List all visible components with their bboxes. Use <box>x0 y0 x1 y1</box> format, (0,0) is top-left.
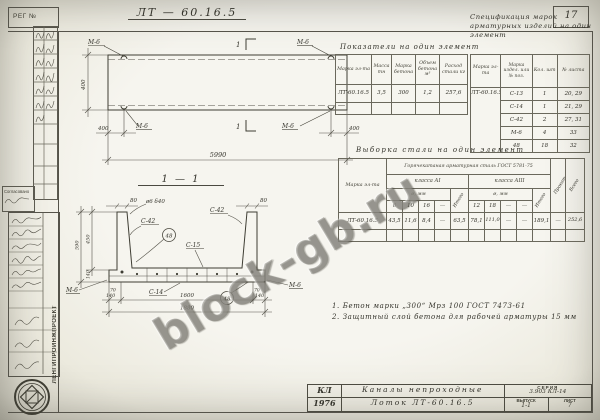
dim-wall-right: 80 <box>260 198 267 204</box>
org-name: ЛЕНГИПРОИНЖПРОЕКТ <box>52 305 58 383</box>
steel-prokat: — <box>551 213 566 230</box>
steel-a3-1: 111,0 <box>485 213 501 230</box>
steel-row-mark: ЛТ-60.16.5 <box>339 213 387 230</box>
loop-label-top-left: М-6 <box>87 39 100 46</box>
issue-value: 1-1 <box>505 402 548 409</box>
spec-title: Спецификация марок арматурных изделий на… <box>470 13 592 41</box>
spec-item-0: С-13 <box>501 88 532 101</box>
steel-class-a1: класса АI <box>387 175 469 189</box>
org-stamp-grid <box>9 213 57 374</box>
spec-h0: Марка эл-та <box>471 55 501 88</box>
section-title: 1 — 1 <box>138 174 224 186</box>
notes: 1. Бетон марки „300“ Мрз 100 ГОСТ 7473-6… <box>332 301 588 323</box>
indicators-h2: Марка бетона <box>392 55 416 85</box>
spec-sheet-1: 21, 29 <box>557 101 589 114</box>
loop-label-bottom-right: М-6 <box>281 123 294 130</box>
spec-item-3: М-6 <box>501 127 532 140</box>
label-c15: С-15 <box>186 242 200 249</box>
loop-label-bottom-left: М-6 <box>135 123 148 130</box>
steel-a3-0: 78,1 <box>469 213 485 230</box>
frame-bottom <box>8 412 593 413</box>
registration-strip <box>33 26 58 200</box>
indicators-h0: Марка эл-та <box>336 55 372 85</box>
steel-a3-2: — <box>501 213 517 230</box>
section-mark-bottom: 1 <box>236 123 240 131</box>
spec-sheet-3: 33 <box>557 127 589 140</box>
pos-48-lower: 48 <box>223 297 231 303</box>
steel-prokat-header: Прокат <box>551 159 566 213</box>
soglasovano-box: Согласовано <box>2 186 35 212</box>
steel-a1-2: 8,4 <box>419 213 435 230</box>
reg-label: РЕГ № <box>13 13 58 20</box>
indicators-table: Марка эл-та Масса тн Марка бетона Объем … <box>335 54 468 115</box>
registration-scribbles <box>36 31 54 122</box>
title-block-item: Лоток ЛТ-60.16.5 <box>342 398 504 411</box>
frame-right <box>592 31 593 412</box>
soglasovano-label: Согласовано <box>4 189 34 194</box>
issue-cell: ВЫПУСК 1-1 <box>505 398 549 411</box>
spec-h2: Кол. шт <box>532 55 557 88</box>
section-drawing: 80 80 ø6 δ40 С-42 С-42 48 48 С-15 С-14 М… <box>62 192 314 324</box>
note-1: 1. Бетон марки „300“ Мрз 100 ГОСТ 7473-6… <box>332 301 588 312</box>
indicators-concrete-grade: 300 <box>392 85 416 103</box>
steel-gost-header: Горячекатаная арматурная сталь ГОСТ 5781… <box>387 159 551 175</box>
dim-inner: 1600 <box>180 293 194 299</box>
dim-base-height: 140 <box>86 270 92 279</box>
sheet-cell: ЛИСТ 7 <box>549 398 591 411</box>
indicators-h1: Масса тн <box>372 55 392 85</box>
steel-a3-total: 189,1 <box>533 213 551 230</box>
title-block-object: Каналы непроходные <box>342 385 504 398</box>
title-block-year: 1976 <box>308 398 341 411</box>
series-value: 3.903 КЛ-14 <box>505 389 591 395</box>
loop-label-top-right: М-6 <box>296 39 309 46</box>
spec-table: Марка эл-та Марка издел. или № поз. Кол.… <box>470 54 590 153</box>
indicators-mark: ЛТ-60.16.5 <box>336 85 372 103</box>
label-c14: С-14 <box>149 289 163 296</box>
steel-dia-a1: ø, мм <box>387 189 451 201</box>
label-m6-right: М-6 <box>288 282 301 289</box>
steel-dia: 6 <box>387 201 403 213</box>
dim-foot-left: 70 <box>110 288 116 294</box>
steel-dia: 12 <box>469 201 485 213</box>
indicators-h3: Объем бетона м³ <box>416 55 440 85</box>
dim-flange-right: 140 <box>255 293 264 299</box>
spec-qty-2: 2 <box>532 114 557 127</box>
indicators-title: Показатели на один элемент <box>340 43 479 51</box>
signature-scribbles <box>12 217 41 369</box>
label-c42-right: С-42 <box>210 207 224 214</box>
spec-sheet-0: 20, 29 <box>557 88 589 101</box>
steel-dia: 16 <box>419 201 435 213</box>
indicators-steel: 257,6 <box>440 85 468 103</box>
dim-end-right: 400 <box>348 126 360 132</box>
spec-qty-3: 4 <box>532 127 557 140</box>
steel-table: Марка эл-та Горячекатаная арматурная ста… <box>338 158 585 242</box>
title-block-code: КЛ <box>308 385 341 398</box>
reg-box: РЕГ № <box>8 7 59 28</box>
spec-sheet-2: 27, 31 <box>557 114 589 127</box>
steel-a1-3: — <box>435 213 451 230</box>
spec-qty-1: 1 <box>532 101 557 114</box>
steel-mark-header: Марка эл-та <box>339 159 387 213</box>
title-block-desc-cell: Каналы непроходные Лоток ЛТ-60.16.5 <box>342 385 505 411</box>
steel-dia: — <box>517 201 533 213</box>
steel-itogo-a3: Итого <box>533 189 551 213</box>
steel-dia: — <box>501 201 517 213</box>
dim-flange-left: 140 <box>106 293 115 299</box>
anchor-label: ø6 δ40 <box>145 199 165 205</box>
spec-h1: Марка издел. или № поз. <box>501 55 532 88</box>
steel-class-a3: класса АIII <box>469 175 551 189</box>
steel-a1-0: 43,5 <box>387 213 403 230</box>
steel-a3-3: — <box>517 213 533 230</box>
label-m6-left: М-6 <box>65 287 78 294</box>
dim-height: 400 <box>81 79 87 91</box>
org-stamp-box: ЛЕНГИПРОИНЖПРОЕКТ <box>8 212 60 377</box>
spec-mark: ЛТ-60.16.5 <box>471 88 501 153</box>
note-2: 2. Защитный слой бетона для рабочей арма… <box>332 312 588 323</box>
pos-48-upper: 48 <box>165 234 173 240</box>
sheet-value: 7 <box>549 402 591 409</box>
steel-itogo-a1: Итого <box>451 189 469 213</box>
steel-a1-total: 63,5 <box>451 213 469 230</box>
drawing-sheet: 17 РЕГ № Согласовано <box>0 0 600 420</box>
dim-length: 5990 <box>210 151 227 159</box>
spec-h3: № листа <box>557 55 589 88</box>
indicators-volume: 1,2 <box>416 85 440 103</box>
issue-sheet-row: ВЫПУСК 1-1 ЛИСТ 7 <box>505 398 591 411</box>
title-block-code-cell: КЛ 1976 <box>308 385 342 411</box>
dim-end-left: 400 <box>97 126 109 132</box>
round-stamp <box>12 377 52 417</box>
steel-title: Выборка стали на один элемент <box>356 146 525 154</box>
steel-dia: 10 <box>403 201 419 213</box>
lifting-loops <box>121 56 334 109</box>
label-c42-left: С-42 <box>141 218 155 225</box>
soglasovano-scribble <box>3 195 32 207</box>
spec-item-1: С-14 <box>501 101 532 114</box>
spec-qty-4: 18 <box>532 140 557 153</box>
dim-total-width: 1880 <box>180 306 194 312</box>
steel-dia: — <box>435 201 451 213</box>
steel-dia: 18 <box>485 201 501 213</box>
indicators-h4: Расход стали кг <box>440 55 468 85</box>
spec-qty-0: 1 <box>532 88 557 101</box>
elevation-drawing: 1 1 М-6 М-6 М-6 М-6 400 400 40 <box>60 34 360 180</box>
steel-vsego-header: Всего <box>566 159 585 213</box>
dim-wall-height: 450 <box>86 234 92 245</box>
drawing-title: ЛТ — 60.16.5 <box>128 6 246 20</box>
series-cell: СЕРИЯ 3.903 КЛ-14 <box>505 385 591 398</box>
dim-wall-left: 80 <box>130 198 137 204</box>
title-block-series-cell: СЕРИЯ 3.903 КЛ-14 ВЫПУСК 1-1 ЛИСТ 7 <box>505 385 591 411</box>
steel-dia-a3: ø, мм <box>469 189 533 201</box>
dim-foot-right: 70 <box>254 288 260 294</box>
steel-a1-1: 11,6 <box>403 213 419 230</box>
section-mark-top: 1 <box>236 41 240 49</box>
spec-sheet-4: 32 <box>557 140 589 153</box>
spec-item-2: С-42 <box>501 114 532 127</box>
dim-total-height: 590 <box>75 240 81 250</box>
title-block: КЛ 1976 Каналы непроходные Лоток ЛТ-60.1… <box>307 384 592 412</box>
indicators-mass: 3,5 <box>372 85 392 103</box>
steel-total: 252,6 <box>566 213 585 230</box>
